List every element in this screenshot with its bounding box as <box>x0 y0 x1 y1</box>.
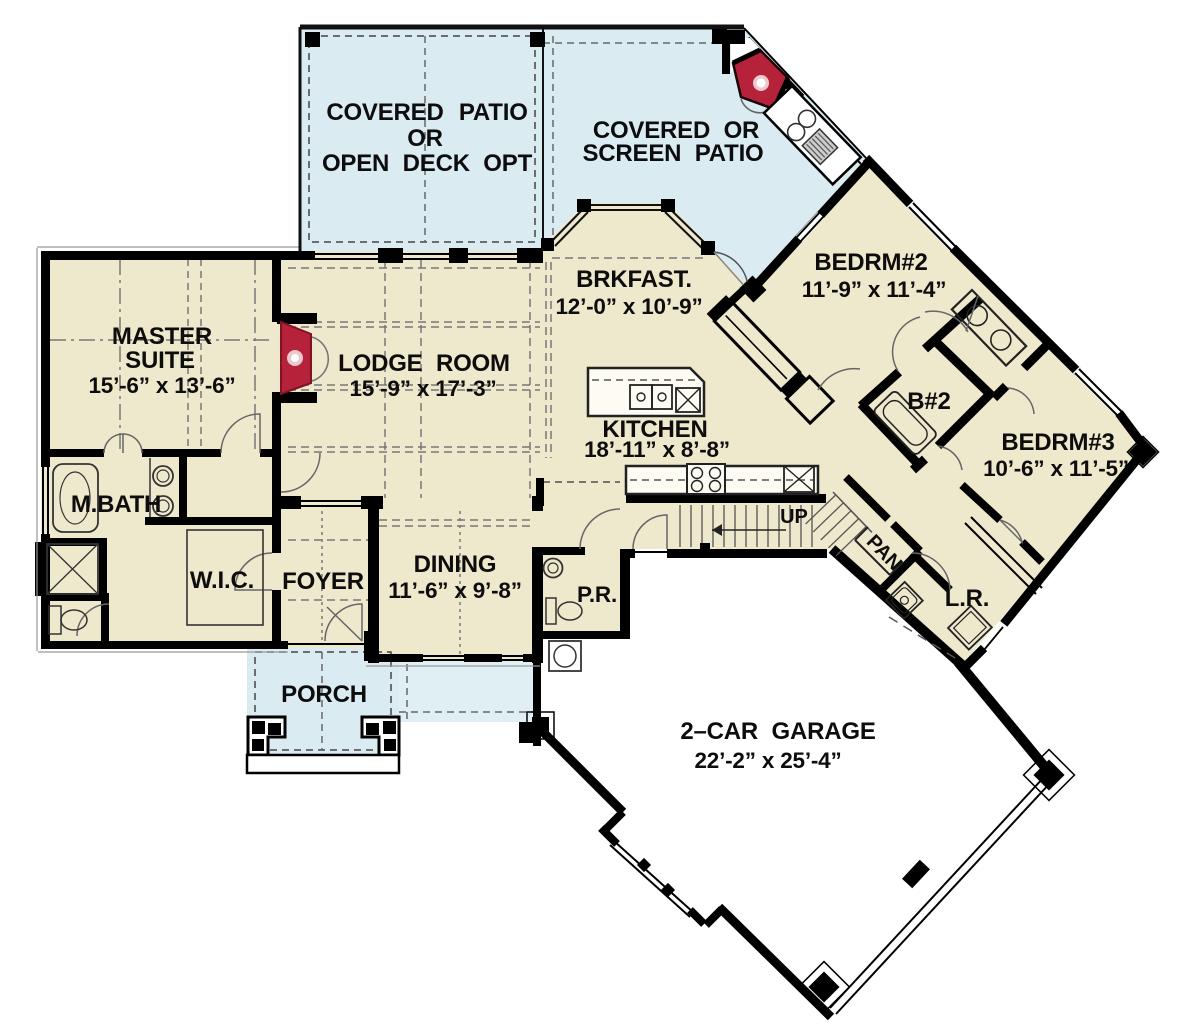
svg-text:15’-9” x 17’-3”: 15’-9” x 17’-3” <box>349 376 496 401</box>
svg-text:M.BATH: M.BATH <box>71 491 161 518</box>
svg-text:22’-2” x 25’-4”: 22’-2” x 25’-4” <box>694 748 841 773</box>
svg-text:OR: OR <box>407 125 443 152</box>
svg-text:SUITE: SUITE <box>125 347 195 374</box>
svg-text:LODGE ROOM: LODGE ROOM <box>338 350 510 377</box>
svg-text:P.R.: P.R. <box>577 582 617 607</box>
svg-text:DINING: DINING <box>414 551 497 578</box>
svg-text:10’-6” x 11’-5”: 10’-6” x 11’-5” <box>983 456 1129 481</box>
svg-text:B#2: B#2 <box>907 388 950 415</box>
svg-text:BEDRM#2: BEDRM#2 <box>814 249 927 276</box>
svg-text:15’-6” x 13’-6”: 15’-6” x 13’-6” <box>88 373 235 398</box>
svg-text:PORCH: PORCH <box>281 681 367 708</box>
svg-text:11’-9” x 11’-4”: 11’-9” x 11’-4” <box>802 277 947 302</box>
svg-text:W.I.C.: W.I.C. <box>190 567 254 594</box>
svg-text:18’-11” x 8’-8”: 18’-11” x 8’-8” <box>584 437 730 462</box>
svg-text:SCREEN PATIO: SCREEN PATIO <box>582 140 763 167</box>
svg-text:OPEN DECK OPT: OPEN DECK OPT <box>322 150 533 177</box>
svg-text:UP: UP <box>780 506 808 528</box>
svg-text:BRKFAST.: BRKFAST. <box>576 266 692 293</box>
svg-text:MASTER: MASTER <box>112 323 212 350</box>
svg-text:2–CAR GARAGE: 2–CAR GARAGE <box>680 718 875 745</box>
svg-text:BEDRM#3: BEDRM#3 <box>1001 429 1114 456</box>
svg-text:COVERED PATIO: COVERED PATIO <box>326 99 527 126</box>
svg-text:L.R.: L.R. <box>945 585 990 612</box>
svg-text:FOYER: FOYER <box>282 568 364 595</box>
svg-text:12’-0” x 10’-9”: 12’-0” x 10’-9” <box>555 294 702 319</box>
svg-text:11’-6” x 9’-8”: 11’-6” x 9’-8” <box>388 578 522 603</box>
